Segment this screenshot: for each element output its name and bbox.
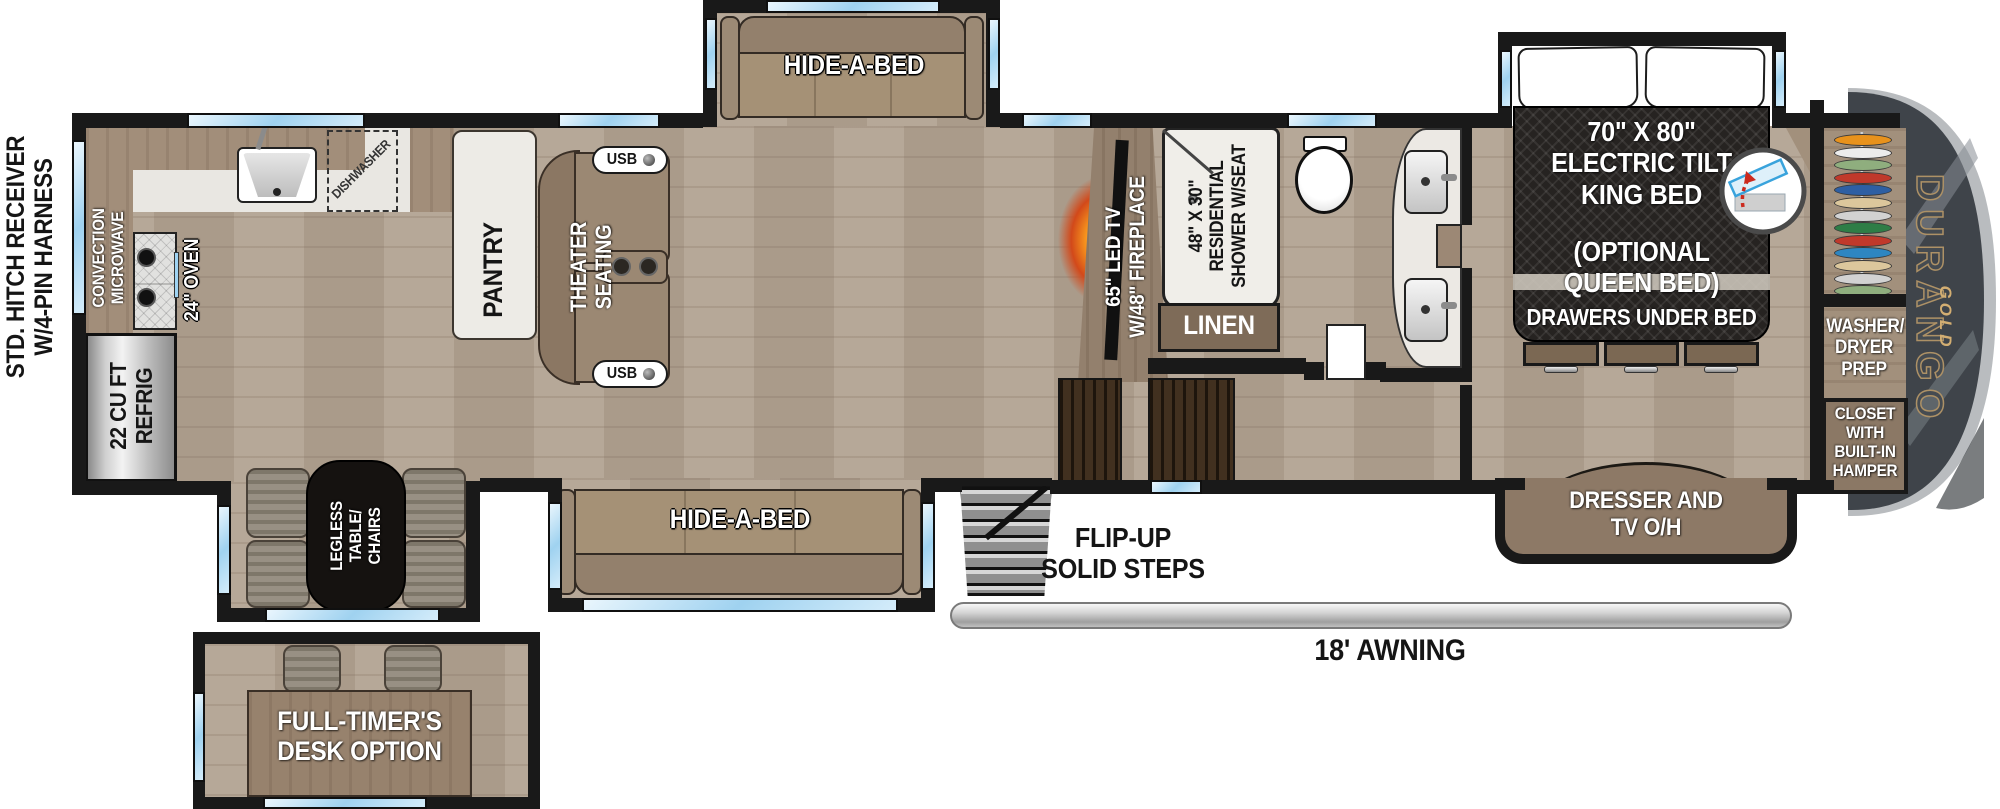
washer-dryer-label: WASHER/ DRYER PREP: [1826, 316, 1902, 388]
window: [1150, 480, 1202, 494]
usb-label: USB: [606, 151, 636, 169]
tilt-bed-icon: [1719, 147, 1807, 235]
dinette-chair: [402, 540, 466, 608]
clothes-hanger: [1834, 260, 1892, 272]
drawer-handle: [1544, 366, 1578, 373]
wall: [1772, 113, 1900, 128]
wall: [1377, 113, 1512, 128]
hitch-label: STD. HITCH RECEIVER W/4-PIN HARNESS: [2, 109, 58, 406]
brand-sub-logo: GOLD: [1933, 258, 1955, 378]
window: [921, 502, 935, 590]
theater-line: SEATING: [592, 195, 617, 339]
clothes-hanger: [1834, 172, 1892, 184]
closet-line: HAMPER: [1828, 461, 1902, 480]
window: [582, 598, 898, 612]
dinette-chair: [246, 540, 310, 608]
window: [558, 113, 660, 128]
linen-label: LINEN: [1164, 310, 1274, 346]
oven-handle: [174, 252, 179, 298]
tv-line: 65" LED TV: [1102, 154, 1126, 361]
convection-line: CONVECTION: [89, 186, 108, 330]
wall: [72, 113, 187, 128]
window: [265, 608, 440, 622]
dresser-line: TV O/H: [1531, 515, 1761, 542]
desk-line: FULL-TIMER'S: [258, 706, 461, 736]
tv-line: W/48" FIREPLACE: [1126, 154, 1150, 361]
window: [766, 0, 940, 13]
range-cooktop: [133, 232, 177, 330]
wall: [365, 113, 558, 128]
dinette-chair: [246, 468, 310, 538]
sink-drain: [1421, 305, 1430, 314]
desk-line: DESK OPTION: [258, 736, 461, 766]
bed-line: 70" X 80": [1526, 116, 1757, 147]
wall: [1000, 113, 1022, 128]
window: [217, 505, 231, 595]
option-line: QUEEN BED): [1526, 267, 1757, 298]
drawers-label: DRAWERS UNDER BED: [1526, 305, 1757, 331]
wall: [1050, 480, 1495, 494]
bath-door: [1326, 324, 1366, 380]
window: [187, 113, 365, 128]
wall: [1460, 385, 1472, 482]
clothes-hanger: [1834, 235, 1892, 247]
wall: [1810, 100, 1824, 494]
interior-stairs: [1148, 378, 1235, 484]
usb-icon: [643, 154, 655, 166]
wall: [1148, 358, 1306, 374]
window: [1774, 50, 1786, 108]
toilet: [1295, 146, 1353, 214]
sofa-back: [574, 553, 904, 595]
window: [193, 692, 205, 782]
wall: [1380, 368, 1472, 382]
washer-line: PREP: [1826, 359, 1902, 380]
window: [1500, 50, 1512, 108]
pantry-wedge: [410, 128, 454, 212]
bed-pillow: [1517, 46, 1638, 110]
wall-stub: [1304, 362, 1324, 380]
interior-stairs: [1058, 378, 1122, 482]
sofa-back: [738, 16, 966, 54]
steps-label: FLIP-UP SOLID STEPS: [1038, 522, 1209, 594]
closet-divider: [1822, 294, 1906, 307]
clothes-hanger: [1834, 210, 1892, 222]
hitch-line: STD. HITCH RECEIVER: [2, 109, 30, 406]
wall: [1462, 268, 1472, 382]
burner: [137, 248, 156, 267]
medicine-cabinet: [1436, 224, 1462, 268]
refrig-label: 22 CU FT REFRIG: [106, 339, 156, 474]
slide-wall: [1498, 32, 1786, 46]
table-line: LEGLESS: [327, 469, 346, 604]
wall: [935, 478, 962, 492]
table-line: TABLE/: [346, 469, 365, 604]
shower-label: 48" X 30" RESIDENTIAL SHOWER W/SEAT: [1186, 144, 1252, 288]
convection-microwave-label: CONVECTION MICROWAVE: [89, 186, 129, 330]
pantry-label: PANTRY: [478, 207, 508, 333]
queen-option-label: (OPTIONAL QUEEN BED): [1526, 236, 1757, 302]
wall: [962, 478, 1052, 486]
underbed-drawer: [1604, 342, 1679, 366]
usb-port-tab: USB: [592, 360, 668, 388]
sink-drain: [1421, 177, 1430, 186]
wall-stub: [1364, 362, 1386, 380]
wall: [660, 113, 703, 128]
wall: [1462, 128, 1472, 225]
dresser-label: DRESSER AND TV O/H: [1531, 488, 1761, 544]
refrig-line: 22 CU FT: [106, 339, 132, 474]
awning-bar: [950, 602, 1792, 629]
option-line: (OPTIONAL: [1526, 236, 1757, 267]
hide-a-bed-top-label: HIDE-A-BED: [736, 50, 972, 84]
underbed-drawer: [1523, 342, 1599, 366]
window: [1287, 113, 1377, 128]
convection-line: MICROWAVE: [108, 186, 127, 330]
shower-line: RESIDENTIAL: [1207, 144, 1228, 288]
wall: [1092, 113, 1287, 128]
window: [1022, 113, 1092, 128]
usb-port-tab: USB: [592, 146, 668, 174]
underbed-drawer: [1684, 342, 1759, 366]
clothes-hanger: [1834, 197, 1892, 209]
closet-line: BUILT-IN: [1828, 442, 1902, 461]
drawer-handle: [1704, 366, 1738, 373]
hitch-line: W/4-PIN HARNESS: [30, 109, 58, 406]
theater-label: THEATER SEATING: [567, 195, 617, 339]
window: [263, 797, 427, 809]
closet-line: WITH: [1828, 423, 1902, 442]
burner: [137, 288, 156, 307]
sink-faucet: [1441, 174, 1457, 181]
wall-stub: [1767, 478, 1797, 490]
cupholder: [639, 257, 658, 276]
theater-line: THEATER: [567, 195, 592, 339]
dresser-line: DRESSER AND: [1531, 488, 1761, 515]
shower-line: 48" X 30": [1186, 144, 1207, 288]
oven-label: 24" OVEN: [181, 231, 207, 330]
washer-line: DRYER: [1826, 337, 1902, 358]
steps-line: SOLID STEPS: [1038, 553, 1209, 584]
slide-wall: [466, 481, 480, 622]
dinette-chair: [402, 468, 466, 538]
steps-line: FLIP-UP: [1038, 522, 1209, 553]
bed-pillow: [1644, 46, 1765, 110]
clothes-hanger: [1834, 147, 1892, 159]
window: [705, 18, 717, 90]
window: [72, 140, 86, 315]
shower-line: SHOWER W/SEAT: [1229, 144, 1250, 288]
window: [988, 18, 1000, 90]
wall: [72, 481, 231, 495]
washer-line: WASHER/: [1826, 316, 1902, 337]
closet-hamper-label: CLOSET WITH BUILT-IN HAMPER: [1828, 404, 1902, 490]
tv-fireplace-label: 65" LED TV W/48" FIREPLACE: [1102, 154, 1154, 361]
refrig-line: REFRIG: [132, 339, 158, 474]
legless-table-label: LEGLESS TABLE/ CHAIRS: [327, 469, 385, 604]
sofa-arm: [902, 489, 922, 595]
rv-floorplan-diagram: DURANGO GOLD DISHWASHER USB USB: [0, 0, 2000, 809]
window: [548, 502, 562, 590]
clothes-hanger: [1834, 273, 1892, 285]
awning-label: 18' AWNING: [1293, 634, 1487, 670]
desk-label: FULL-TIMER'S DESK OPTION: [258, 706, 461, 768]
sink-drain: [273, 188, 281, 196]
wall-stub: [1495, 478, 1525, 490]
drawer-handle: [1624, 366, 1658, 373]
closet-line: CLOSET: [1828, 404, 1902, 423]
clothes-hanger: [1834, 134, 1892, 146]
usb-icon: [643, 368, 655, 380]
sink-faucet: [1441, 302, 1457, 309]
table-line: CHAIRS: [365, 469, 384, 604]
hide-a-bed-bottom-label: HIDE-A-BED: [575, 504, 904, 538]
usb-label: USB: [606, 365, 636, 383]
